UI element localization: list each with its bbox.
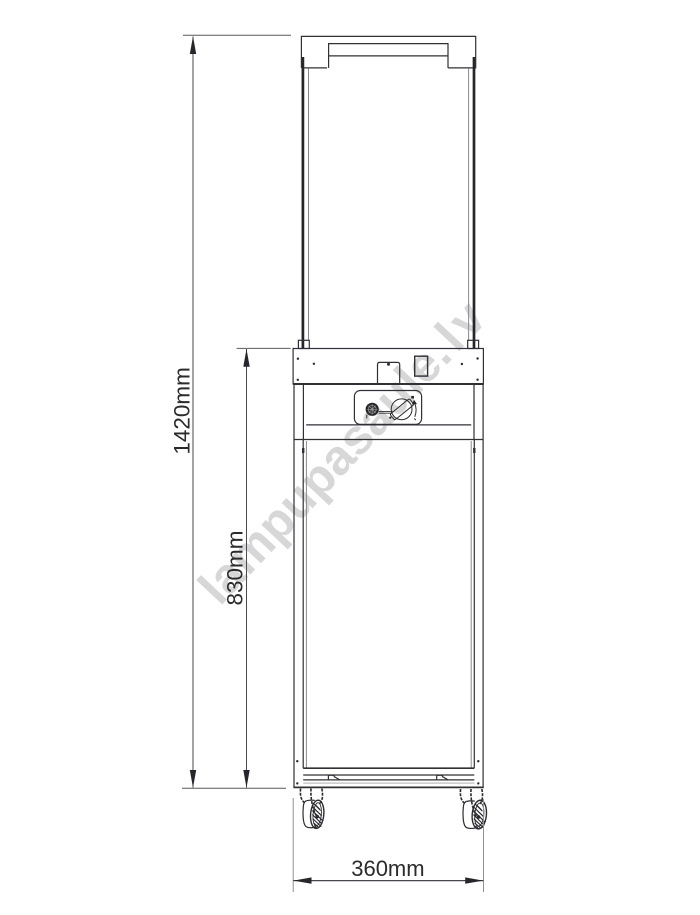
- svg-text:1420mm: 1420mm: [170, 367, 195, 455]
- svg-text:830mm: 830mm: [223, 530, 248, 605]
- svg-text:360mm: 360mm: [351, 856, 424, 881]
